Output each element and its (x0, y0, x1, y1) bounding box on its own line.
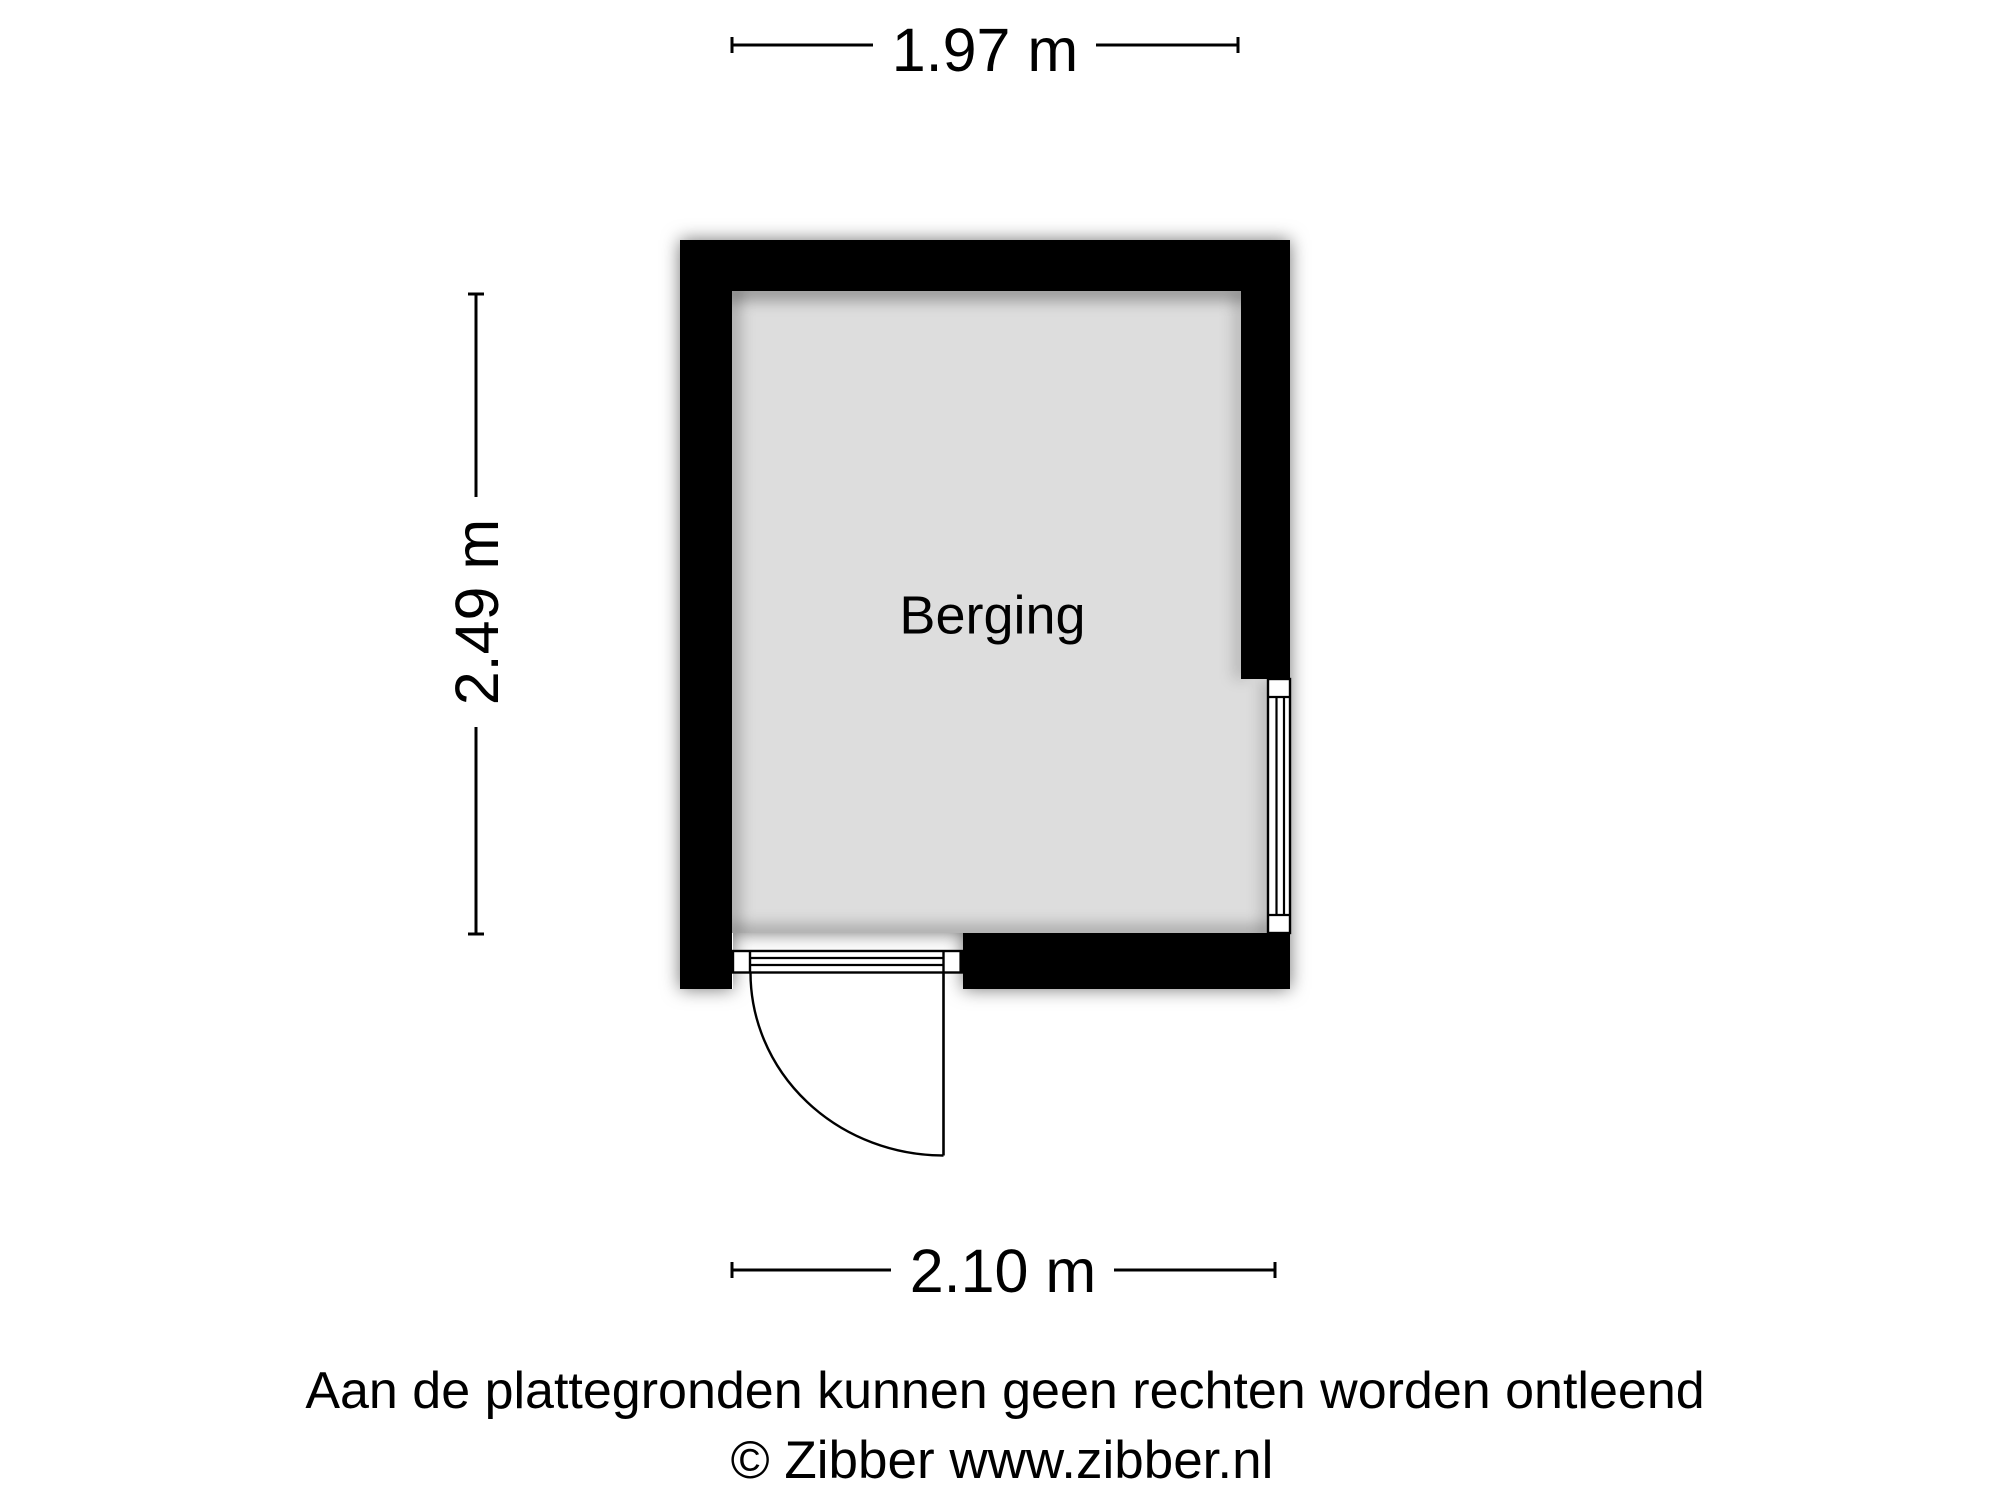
svg-text:© Zibber www.zibber.nl: © Zibber www.zibber.nl (731, 1431, 1274, 1490)
svg-text:Aan de plattegronden kunnen ge: Aan de plattegronden kunnen geen rechten… (305, 1362, 1704, 1420)
svg-text:2.10 m: 2.10 m (910, 1237, 1097, 1305)
svg-text:2.49 m: 2.49 m (443, 519, 511, 706)
svg-text:Berging: Berging (899, 586, 1085, 646)
svg-text:1.97 m: 1.97 m (892, 16, 1079, 84)
